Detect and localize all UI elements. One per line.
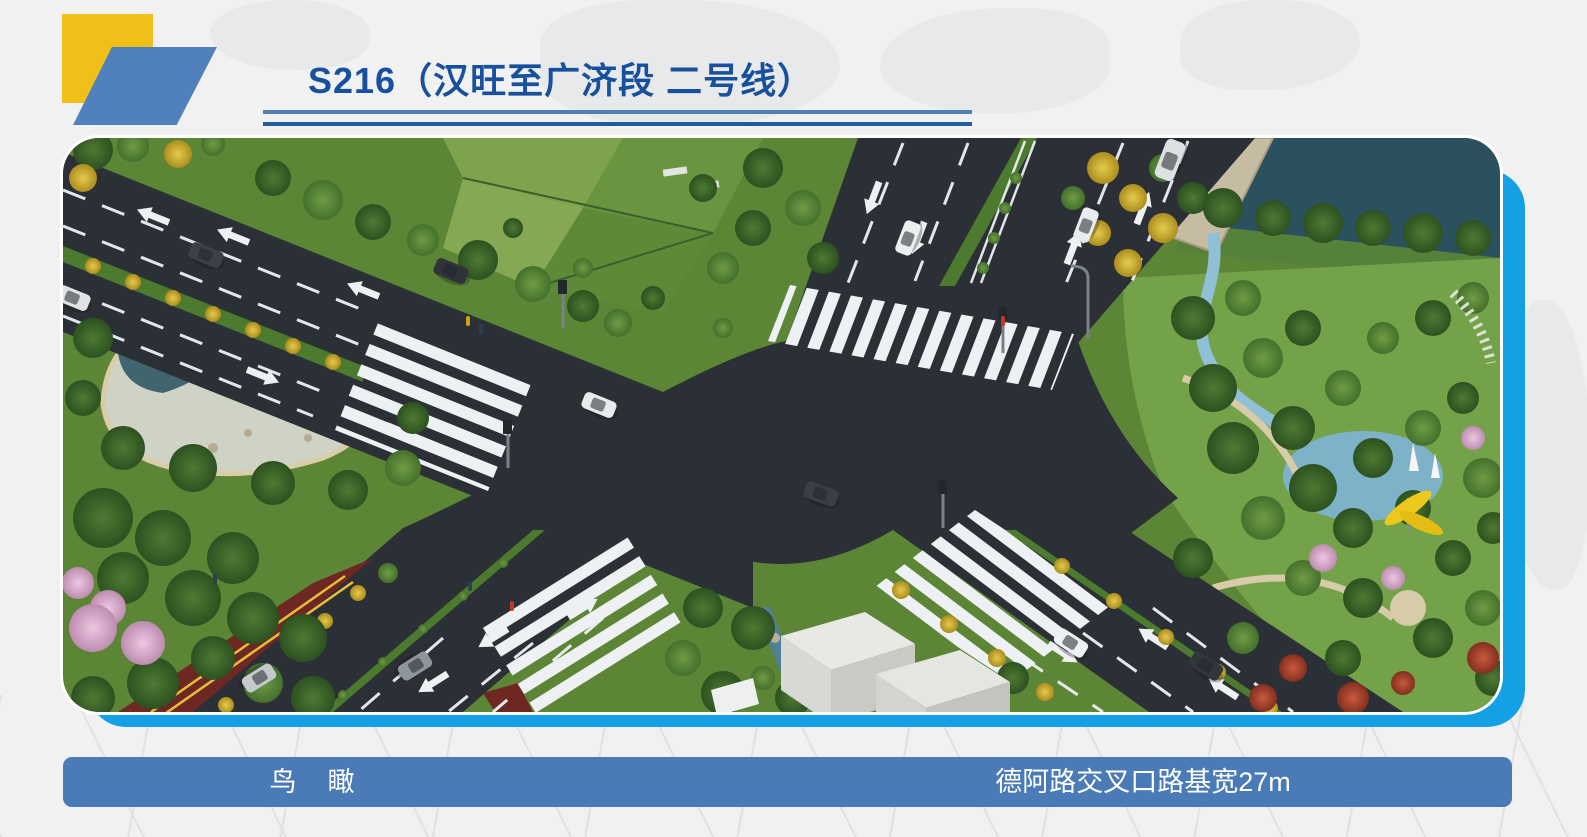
caption-right: 德阿路交叉口路基宽27m: [853, 757, 1433, 807]
caption-left: 鸟 瞰: [193, 757, 433, 807]
intersection-scene: [63, 138, 1500, 712]
worldmap-blob: [880, 8, 1110, 113]
page-title: S216（汉旺至广济段 二号线）: [308, 52, 814, 104]
title-underline-bottom: [263, 122, 972, 126]
aerial-intersection-rendering: [63, 138, 1500, 712]
slide: S216（汉旺至广济段 二号线）: [0, 0, 1587, 837]
title-underline-top: [263, 110, 972, 114]
caption-bar: 鸟 瞰 德阿路交叉口路基宽27m: [63, 757, 1512, 807]
worldmap-blob: [1180, 0, 1360, 90]
